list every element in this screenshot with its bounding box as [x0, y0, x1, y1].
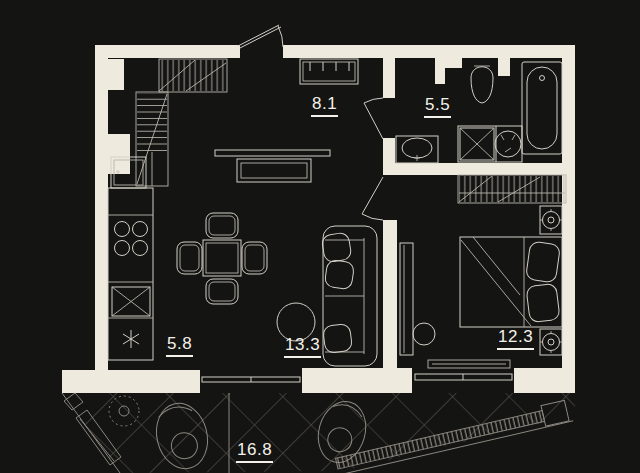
bathtub	[522, 62, 562, 154]
nightstand-top	[540, 206, 562, 234]
bathroom-sink	[396, 136, 438, 163]
dining-chairs	[177, 213, 267, 304]
floor-plan-drawing	[0, 0, 640, 473]
bathroom-door	[364, 98, 383, 139]
hallway-wardrobe	[159, 59, 227, 92]
bed	[460, 237, 562, 327]
sofa	[321, 226, 377, 366]
entrance-door	[238, 25, 283, 48]
pouf	[413, 323, 435, 345]
stove-burners	[115, 222, 148, 256]
fridge	[123, 330, 139, 348]
dresser	[400, 243, 413, 355]
hallway-bench	[300, 59, 358, 84]
hallway-shelving	[136, 92, 168, 186]
room-label-hallway: 8.1	[311, 95, 338, 117]
tv-console	[215, 150, 330, 182]
room-label-bathroom: 5.5	[424, 96, 451, 118]
room-label-bedroom: 12.3	[497, 328, 534, 350]
bedroom-door	[362, 177, 383, 220]
nightstand-bottom	[540, 329, 562, 355]
dining-table	[203, 240, 241, 276]
room-label-kitchen: 5.8	[166, 335, 193, 357]
toilet	[471, 66, 493, 103]
radiator	[428, 360, 510, 368]
floor-plan: 8.1 5.5 5.8 13.3 12.3 16.8	[0, 0, 640, 473]
washing-machine	[458, 126, 522, 162]
bedroom-wardrobe	[458, 175, 566, 203]
bedroom-window	[415, 374, 512, 380]
kitchen-sink	[112, 287, 150, 316]
room-label-terrace: 16.8	[236, 441, 273, 463]
living-room-window	[202, 377, 300, 382]
room-label-living-room: 13.3	[284, 336, 321, 358]
